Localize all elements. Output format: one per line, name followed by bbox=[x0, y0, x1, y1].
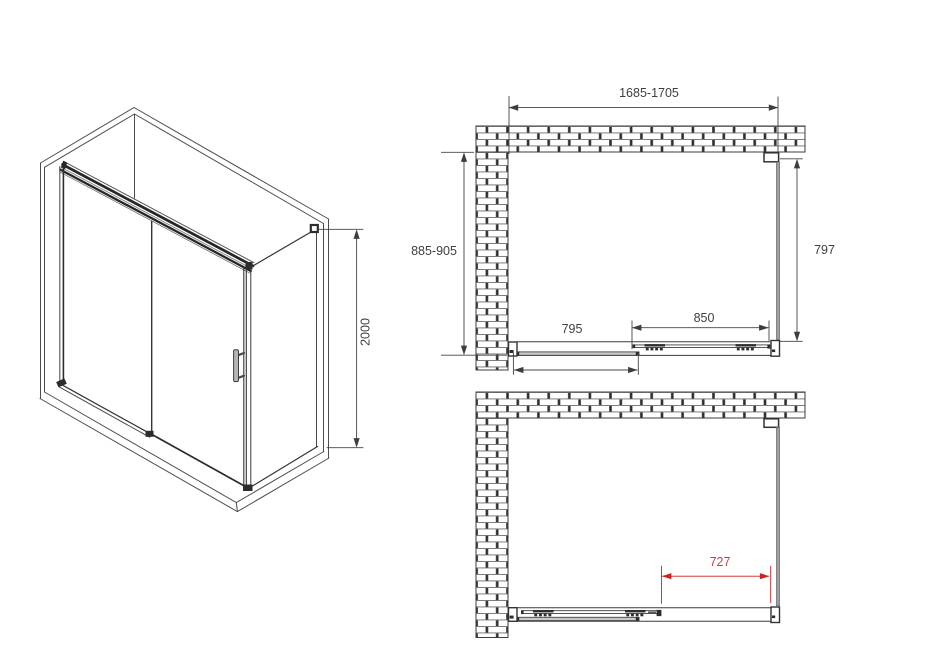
svg-text:850: 850 bbox=[694, 311, 715, 325]
svg-text:727: 727 bbox=[710, 555, 731, 569]
svg-text:797: 797 bbox=[814, 243, 835, 257]
svg-text:795: 795 bbox=[562, 322, 583, 336]
svg-text:885-905: 885-905 bbox=[411, 244, 457, 258]
svg-text:1685-1705: 1685-1705 bbox=[619, 86, 679, 100]
svg-text:2000: 2000 bbox=[359, 318, 373, 346]
